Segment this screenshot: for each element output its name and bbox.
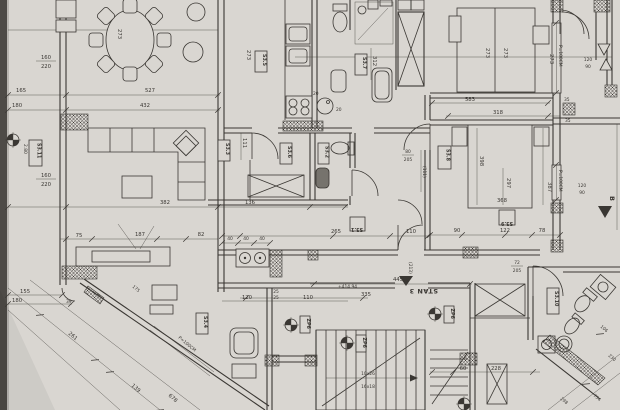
dim-label: 273 (502, 48, 508, 58)
room-label-s31: S3.1 (350, 217, 365, 232)
dim-label: 318 (493, 110, 504, 116)
stairs-note: 16x18 (361, 384, 375, 390)
apartment-label: STAN 3 (409, 287, 438, 295)
svg-text:S3.8: S3.8 (445, 149, 451, 162)
dim-label: 120 (578, 183, 587, 189)
svg-text:S3.2: S3.2 (324, 146, 330, 158)
svg-text:S3.7: S3.7 (361, 57, 367, 69)
window-note: P=100CM (557, 170, 563, 192)
svg-text:S3.9: S3.9 (500, 220, 513, 226)
dim-label: 122 (500, 228, 510, 234)
room-label-s35: S3.5 (255, 51, 267, 72)
dim-label: 90 (585, 64, 591, 70)
level-note: +414.94 (338, 284, 357, 290)
room-label-s33: S3.3 (218, 140, 230, 161)
svg-text:ZP6: ZP6 (305, 319, 311, 330)
stairs-note: 10x26 (361, 371, 375, 377)
side-table (187, 3, 205, 21)
dim-label: 155 (20, 289, 30, 295)
svg-text:S3.1: S3.1 (351, 226, 363, 232)
svg-text:S3.10: S3.10 (553, 291, 559, 307)
room-label-s311: S3.11 (29, 140, 42, 166)
dim-label: 180 (12, 298, 23, 304)
dim-label: (213) (407, 262, 413, 274)
bed (468, 125, 532, 208)
dim-label: 120 (242, 295, 253, 301)
height-note: 2.80 (22, 144, 28, 154)
washbasin-icon (316, 168, 329, 188)
door-size: 205 (513, 268, 522, 274)
beam-label-zp6: ZP6 (300, 316, 311, 333)
dim-label: 60 (460, 366, 467, 372)
dim-label: 40 (259, 236, 265, 242)
dim-label: 527 (145, 88, 155, 94)
room-label-s36: S3.6 (280, 143, 292, 164)
dim-label: 35 (564, 97, 570, 103)
bedroom-1 (449, 8, 549, 92)
dim-label: 273 (245, 50, 251, 60)
svg-text:S3.3: S3.3 (224, 143, 230, 155)
svg-text:ZP6: ZP6 (449, 309, 455, 320)
dining-table (89, 0, 171, 81)
dim-label: 180 (12, 103, 23, 109)
coffee-table (122, 176, 152, 198)
room-label-s39: S3.9 (499, 210, 515, 226)
dim-label: 110 (303, 295, 314, 301)
armchair (230, 328, 258, 378)
dim-label: 297 (505, 178, 511, 188)
dim-label: 35 (565, 118, 571, 124)
dim-label: 368 (497, 198, 508, 204)
nightstand (534, 127, 549, 146)
svg-text:S3.11: S3.11 (36, 143, 42, 158)
svg-text:S3.5: S3.5 (261, 54, 267, 66)
dim-label: 273 (548, 54, 554, 64)
dim-label: 187 (135, 232, 145, 238)
floorplan-photo: 160 220 165 527 180 432 273 160 220 382 … (0, 0, 620, 410)
side-unit (152, 285, 177, 300)
dim-label: 583 (465, 97, 475, 103)
beam-label-zp6: ZP6 (444, 306, 455, 323)
cabinet (56, 20, 76, 32)
dim-label: 160 (41, 55, 52, 61)
dim-label: 382 (160, 200, 170, 206)
dim-label: 387 (546, 182, 552, 192)
beam-label-zp6: ZP6 (356, 335, 367, 352)
dim-label: 20 (313, 91, 319, 97)
dim-label: 90 (454, 228, 461, 234)
dim-label: 265 (331, 229, 341, 235)
counter-basins (236, 249, 269, 267)
dim-label: 82 (198, 232, 205, 238)
dim-label: 75 (76, 233, 83, 239)
room-label-s310: S3.10 (547, 288, 559, 314)
cabinet (56, 0, 76, 18)
room-label-s32: S3.2 (318, 143, 330, 164)
dim-label: 40 (243, 236, 249, 242)
dim-label: 445 (393, 277, 403, 283)
room-label-s38: S3.8 (438, 146, 451, 169)
dim-label: 335 (361, 292, 371, 298)
dim-label: 111 (241, 138, 247, 148)
dim-label: 110 (406, 229, 417, 235)
section-label: B (608, 196, 616, 201)
nightstand (449, 16, 461, 42)
dim-label: 78 (539, 228, 546, 234)
dim-label: 39 (66, 299, 72, 305)
dim-label: 20 (336, 107, 342, 113)
dim-label: 273 (484, 48, 490, 58)
dim-label: 136 (245, 200, 256, 206)
dim-label: (111) (421, 166, 427, 178)
dim-label: 25 (273, 289, 279, 295)
nightstand (533, 26, 549, 44)
dim-label: 273 (116, 29, 122, 39)
dim-label: 25 (273, 295, 279, 301)
stove-icon (286, 96, 312, 118)
dim-label: 120 (584, 57, 593, 63)
dim-label: 220 (41, 182, 52, 188)
room-label-s34: S3.4 (196, 313, 208, 334)
dim-label: 432 (140, 103, 150, 109)
double-bed (457, 8, 535, 92)
side-unit (150, 305, 173, 314)
door-size: 80 (405, 149, 411, 155)
dim-label: 165 (16, 88, 26, 94)
door-size: 72 (514, 260, 520, 266)
door-size: 205 (404, 157, 413, 163)
room-label-s37: S3.7 (355, 54, 367, 75)
side-table (183, 42, 203, 62)
dim-label: 228 (491, 366, 502, 372)
nightstand (452, 127, 467, 146)
floor-plan-svg: 160 220 165 527 180 432 273 160 220 382 … (0, 0, 620, 410)
svg-text:ZP6: ZP6 (361, 338, 367, 349)
dim-label: 40 (227, 236, 233, 242)
svg-text:S3.4: S3.4 (202, 316, 208, 329)
window-note: P=100CM (557, 45, 563, 67)
dim-label: 90 (579, 190, 585, 196)
svg-text:S3.6: S3.6 (286, 146, 292, 159)
dim-label: 312 (371, 56, 377, 66)
dim-label: 220 (41, 64, 52, 70)
dim-label: 398 (478, 156, 484, 167)
dim-label: 160 (41, 173, 52, 179)
